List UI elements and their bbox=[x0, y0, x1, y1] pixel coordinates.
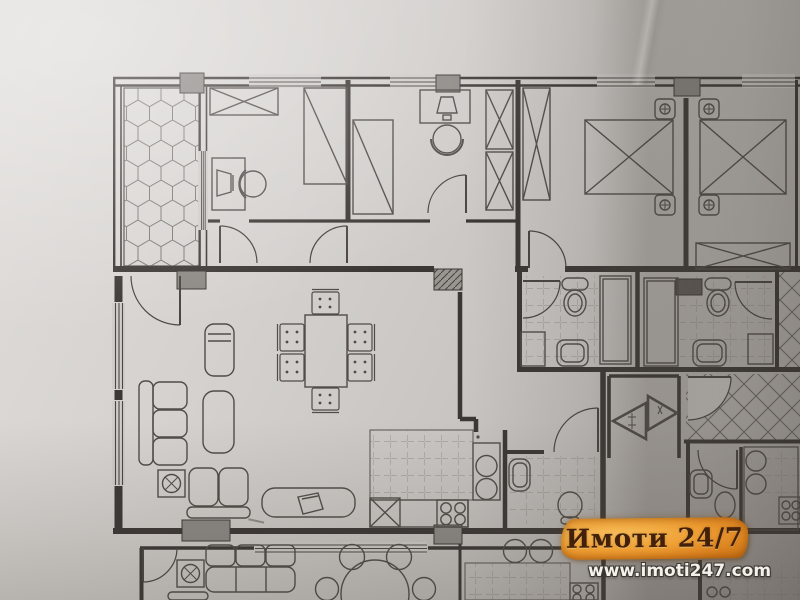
watermark-badge: Имоти 24/7 bbox=[561, 517, 748, 560]
kitchen-sink-icon bbox=[746, 451, 766, 494]
door-swing bbox=[310, 226, 347, 263]
coffee-table-icon bbox=[203, 391, 234, 453]
hex-tile-terrace bbox=[124, 88, 199, 266]
balcony-door-window bbox=[198, 151, 208, 230]
lower-right-tiles bbox=[765, 447, 800, 505]
desk-chair-icon bbox=[431, 125, 463, 155]
single-bed-icon bbox=[353, 120, 393, 214]
floor-plan-photo: Имоти 24/7 www.imoti247.com bbox=[0, 0, 800, 600]
refrigerator-icon bbox=[370, 498, 400, 527]
double-bed-icon bbox=[585, 120, 673, 194]
shower-cabin-icon bbox=[600, 276, 631, 364]
door-swing bbox=[220, 226, 257, 263]
window bbox=[112, 401, 125, 485]
potted-plant-icon bbox=[158, 470, 185, 497]
door-swing bbox=[428, 175, 466, 213]
desk-chair-icon bbox=[239, 170, 266, 198]
nightstand-icon bbox=[699, 99, 719, 119]
structural-column bbox=[177, 271, 206, 289]
structural-column bbox=[182, 520, 230, 541]
structural-column bbox=[434, 525, 462, 544]
wc-tiles bbox=[510, 456, 596, 524]
armchair-icon bbox=[205, 324, 234, 376]
door-swing bbox=[529, 231, 566, 268]
desk-icon bbox=[420, 90, 470, 123]
cooktop-stove-icon bbox=[570, 583, 598, 600]
shower-cabin-icon bbox=[644, 278, 678, 366]
lower-kitchen-tiles bbox=[465, 563, 570, 600]
door-swing bbox=[131, 276, 180, 325]
window bbox=[597, 74, 655, 88]
structural-column bbox=[676, 279, 702, 295]
wardrobe-icon bbox=[486, 90, 513, 149]
tv-cabinet-icon bbox=[262, 488, 355, 517]
nightstand-icon bbox=[699, 195, 719, 215]
dining-chair-icon bbox=[278, 290, 375, 413]
armchair-icon bbox=[168, 592, 208, 600]
structural-column bbox=[674, 78, 700, 96]
sofa-two-seat-icon bbox=[187, 468, 250, 518]
double-bed-icon bbox=[700, 120, 786, 194]
nightstand-icon bbox=[655, 99, 675, 119]
watermark-url: www.imoti247.com bbox=[588, 561, 750, 581]
wash-basin-icon bbox=[690, 470, 712, 498]
wardrobe-icon bbox=[486, 152, 513, 210]
dining-table-icon bbox=[305, 315, 347, 387]
watermark-brand: Имоти 24/7 bbox=[565, 523, 743, 555]
structural-column bbox=[180, 73, 204, 93]
floor-plan-drawing bbox=[0, 0, 800, 600]
door-swing bbox=[554, 408, 598, 452]
round-table-icon bbox=[341, 560, 409, 600]
wardrobe-icon bbox=[210, 88, 278, 115]
window bbox=[742, 74, 795, 88]
stair-hatch bbox=[779, 268, 800, 369]
kitchen-tiles bbox=[370, 430, 473, 500]
window bbox=[112, 303, 125, 389]
window bbox=[249, 74, 321, 88]
nightstand-icon bbox=[655, 195, 675, 215]
single-bed-icon bbox=[304, 88, 347, 184]
sofa-three-seat-icon bbox=[139, 381, 187, 465]
kitchen-sink-icon bbox=[504, 540, 553, 563]
potted-plant-icon bbox=[177, 560, 204, 587]
wardrobe-icon bbox=[523, 88, 550, 200]
door-swing bbox=[143, 548, 177, 582]
wall-segment bbox=[460, 292, 476, 432]
wardrobe-icon bbox=[696, 243, 790, 269]
cooktop-stove-icon bbox=[437, 500, 468, 527]
entrance-arrow-left-icon bbox=[613, 403, 646, 439]
structural-column-hatched bbox=[434, 269, 462, 290]
entrance-arrow-right-icon bbox=[648, 396, 677, 430]
wall-segment bbox=[434, 543, 460, 600]
kitchen-sink-icon bbox=[476, 456, 497, 500]
